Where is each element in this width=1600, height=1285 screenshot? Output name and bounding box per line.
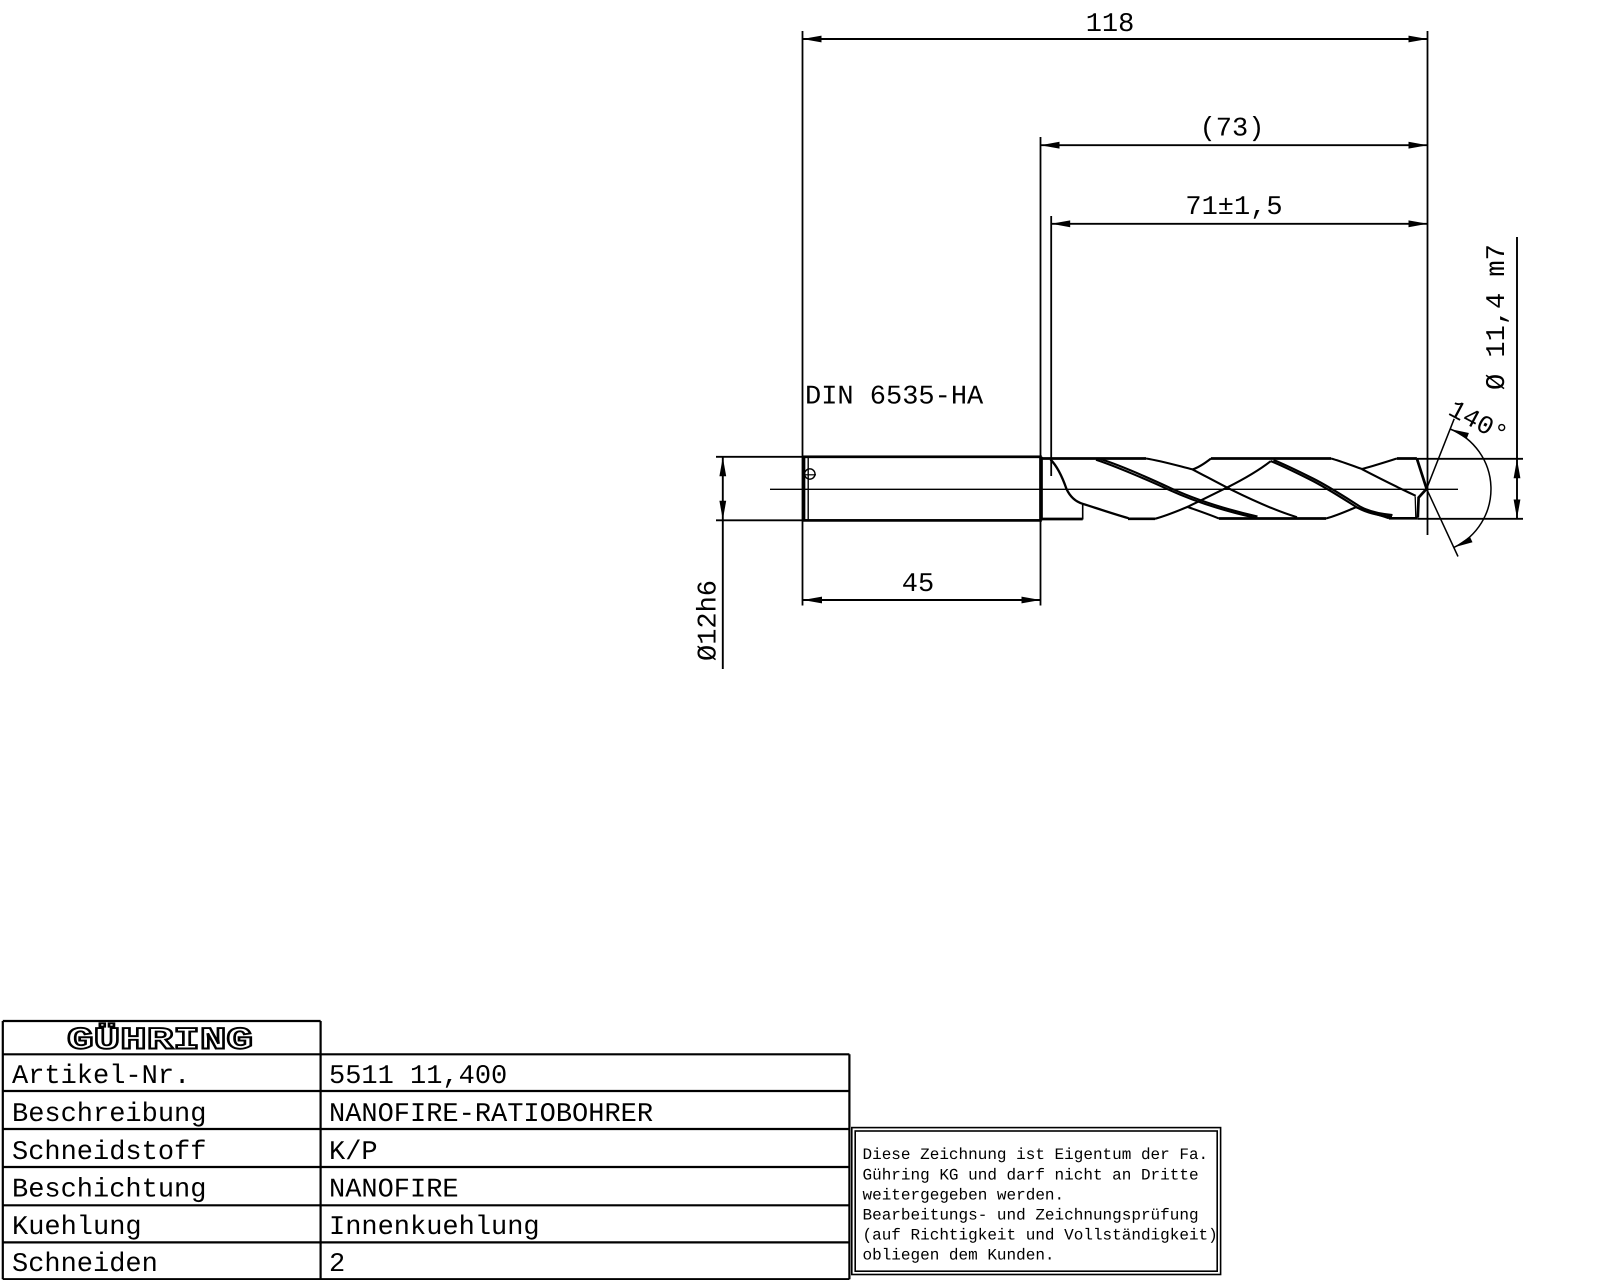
svg-text:Schneidstoff: Schneidstoff (12, 1138, 206, 1168)
svg-text:Schneiden: Schneiden (12, 1250, 158, 1280)
svg-text:Bearbeitungs- und Zeichnungspr: Bearbeitungs- und Zeichnungsprüfung (863, 1206, 1199, 1224)
svg-text:Beschichtung: Beschichtung (12, 1175, 206, 1205)
svg-text:(73): (73) (1200, 115, 1265, 145)
svg-text:DIN 6535-HA: DIN 6535-HA (805, 383, 984, 413)
svg-text:Innenkuehlung: Innenkuehlung (329, 1213, 540, 1243)
svg-text:71±1,5: 71±1,5 (1185, 193, 1282, 223)
svg-text:NANOFIRE-RATIOBOHRER: NANOFIRE-RATIOBOHRER (329, 1100, 653, 1130)
svg-text:Ø12h6: Ø12h6 (695, 580, 725, 661)
svg-text:NANOFIRE: NANOFIRE (329, 1175, 459, 1205)
svg-text:118: 118 (1086, 10, 1135, 40)
svg-text:5511 11,400: 5511 11,400 (329, 1062, 507, 1092)
svg-text:Ø 11,4 m7: Ø 11,4 m7 (1483, 244, 1513, 390)
svg-text:Diese Zeichnung ist Eigentum d: Diese Zeichnung ist Eigentum der Fa. (863, 1146, 1209, 1164)
svg-text:Kuehlung: Kuehlung (12, 1213, 142, 1243)
svg-text:(auf Richtigkeit und Vollständ: (auf Richtigkeit und Vollständigkeit) (863, 1226, 1218, 1244)
svg-text:GÜHRING: GÜHRING (67, 1023, 253, 1059)
svg-text:K/P: K/P (329, 1138, 378, 1168)
svg-text:obliegen dem Kunden.: obliegen dem Kunden. (863, 1246, 1055, 1264)
svg-text:2: 2 (329, 1250, 345, 1280)
svg-text:weitergegeben werden.: weitergegeben werden. (863, 1186, 1065, 1204)
svg-text:Gühring KG und darf nicht an D: Gühring KG und darf nicht an Dritte (863, 1166, 1199, 1184)
svg-text:Beschreibung: Beschreibung (12, 1100, 206, 1130)
svg-text:Artikel-Nr.: Artikel-Nr. (12, 1062, 190, 1092)
svg-text:45: 45 (902, 570, 934, 600)
